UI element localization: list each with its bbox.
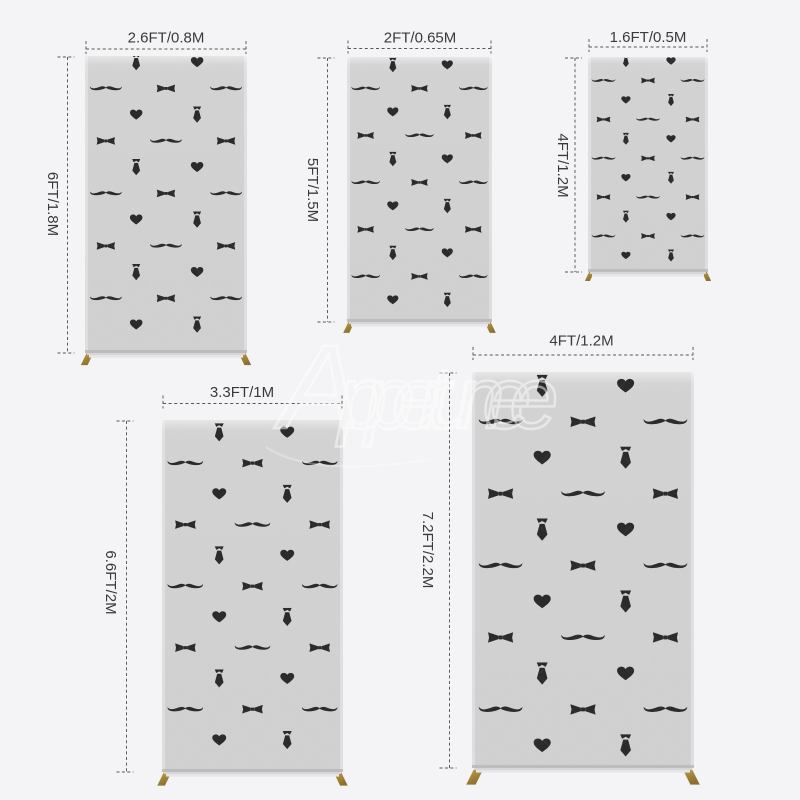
svg-text:3.3FT/1M: 3.3FT/1M: [210, 384, 274, 401]
svg-text:2.6FT/0.8M: 2.6FT/0.8M: [128, 30, 205, 47]
svg-text:5FT/1.5M: 5FT/1.5M: [304, 158, 321, 222]
svg-text:7.2FT/2.2M: 7.2FT/2.2M: [419, 512, 436, 589]
svg-text:2FT/0.65M: 2FT/0.65M: [384, 30, 457, 47]
svg-text:6.6FT/2M: 6.6FT/2M: [102, 550, 119, 614]
svg-text:6FT/1.8M: 6FT/1.8M: [44, 172, 61, 236]
svg-text:4FT/1.2M: 4FT/1.2M: [554, 133, 571, 197]
svg-text:4FT/1.2M: 4FT/1.2M: [549, 333, 613, 350]
svg-text:1.6FT/0.5M: 1.6FT/0.5M: [610, 29, 687, 46]
svg-text:Appertunee: Appertunee: [274, 320, 555, 454]
